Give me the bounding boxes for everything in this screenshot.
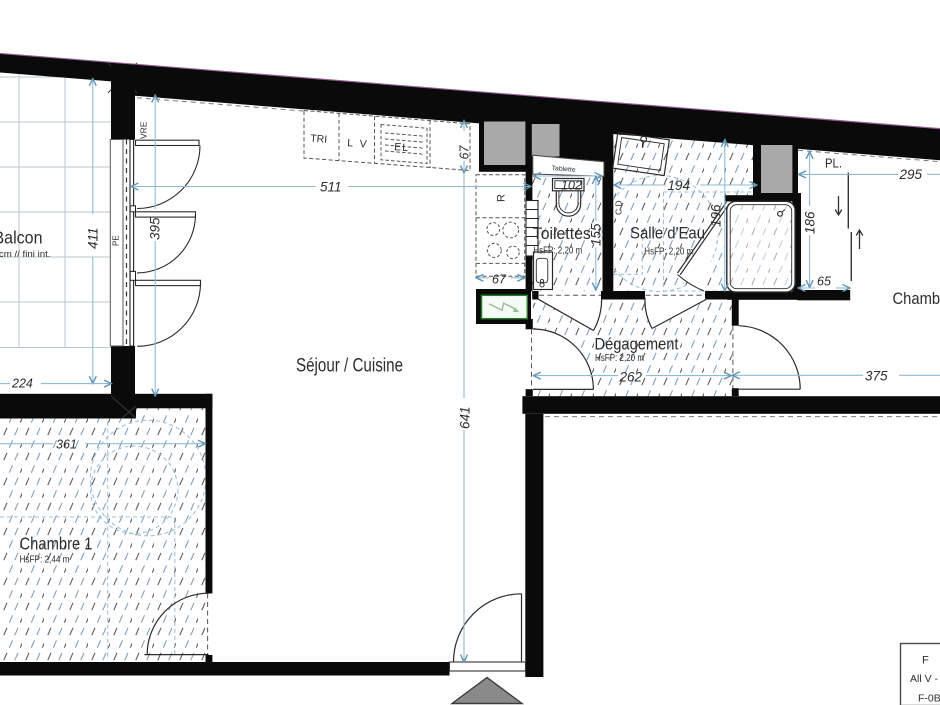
svg-text:HsFP: 2,44 m: HsFP: 2,44 m [20, 554, 70, 566]
svg-text:375: 375 [865, 369, 888, 384]
svg-text:196: 196 [709, 204, 724, 227]
svg-text:C.D: C.D [614, 200, 624, 215]
svg-text:102: 102 [561, 179, 582, 193]
svg-text:262: 262 [619, 370, 643, 385]
svg-text:295: 295 [899, 167, 923, 182]
svg-text:Salle d'Eau: Salle d'Eau [630, 223, 705, 242]
svg-text:194: 194 [668, 178, 691, 193]
svg-text:F: F [922, 655, 929, 667]
svg-text:R: R [496, 194, 508, 202]
svg-text:67: 67 [492, 273, 507, 287]
svg-text:F-0B: F-0B [918, 693, 940, 705]
svg-text:224: 224 [11, 377, 33, 391]
svg-text:Toilettes: Toilettes [533, 224, 591, 243]
svg-text:Séjour / Cuisine: Séjour / Cuisine [296, 356, 403, 377]
svg-text:VRE: VRE [139, 121, 149, 139]
svg-text:TRI: TRI [310, 133, 328, 146]
svg-text:67: 67 [458, 145, 472, 160]
svg-text:HsFP: 2,20 m: HsFP: 2,20 m [595, 352, 644, 364]
svg-text:L V: L V [347, 137, 369, 151]
svg-text:Chambre 1: Chambre 1 [20, 534, 93, 554]
svg-text:EL: EL [394, 141, 410, 154]
svg-text:All V - N: All V - N [910, 673, 940, 685]
svg-text:Dégagement: Dégagement [595, 334, 679, 353]
svg-text:HsFP: 2,20 m: HsFP: 2,20 m [644, 246, 693, 258]
svg-text:HsFP: 2,20 m: HsFP: 2,20 m [533, 245, 582, 257]
svg-text:Balcon: Balcon [0, 228, 43, 248]
svg-text:PE: PE [112, 235, 121, 246]
svg-text:411: 411 [86, 227, 101, 249]
svg-text:65: 65 [817, 275, 831, 289]
svg-text:0cm // fini int.: 0cm // fini int. [0, 249, 51, 260]
svg-text:395: 395 [148, 217, 163, 240]
svg-text:361: 361 [56, 438, 77, 452]
svg-text:641: 641 [458, 406, 473, 429]
svg-text:186: 186 [803, 211, 818, 234]
svg-text:PL.: PL. [825, 157, 842, 171]
svg-text:Chambre 2: Chambre 2 [893, 289, 940, 308]
svg-text:511: 511 [320, 180, 342, 195]
